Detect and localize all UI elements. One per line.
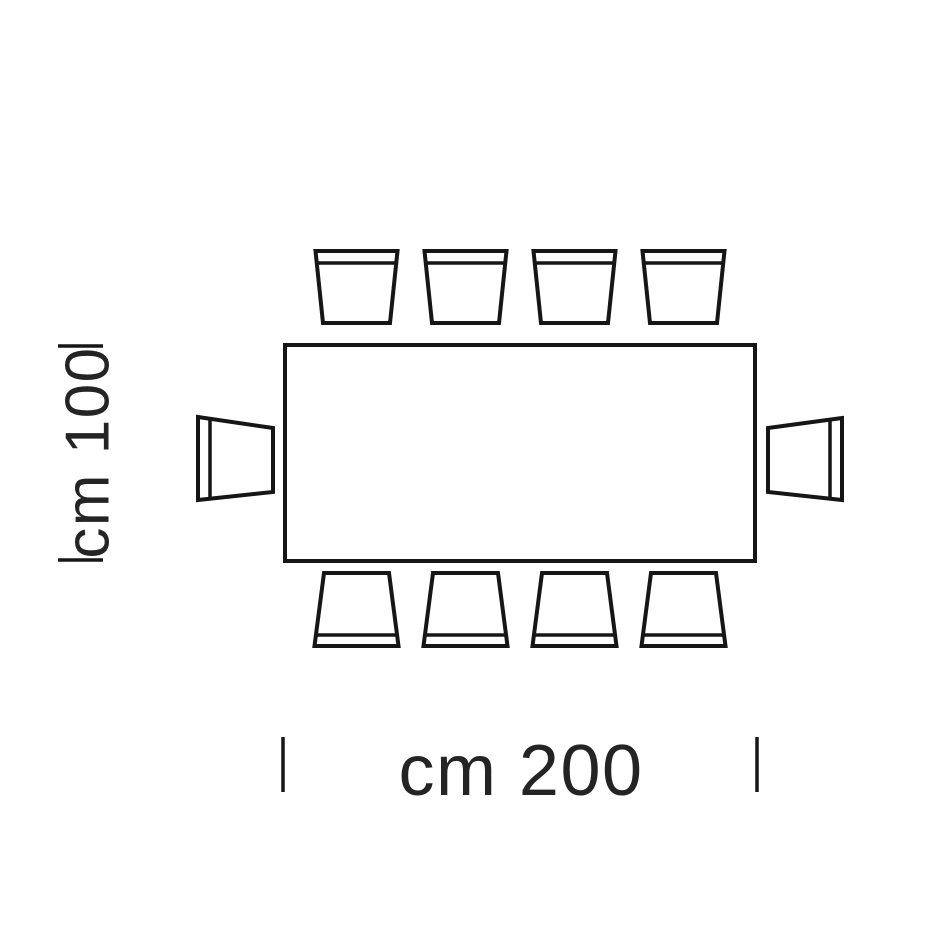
table-dimension-diagram: cm 100 cm 200 — [0, 0, 950, 950]
chair-top-4-icon — [643, 251, 725, 323]
chair-top-2-icon — [425, 251, 507, 323]
chair-bottom-4-icon — [642, 573, 726, 646]
chair-bottom-3-icon — [533, 573, 617, 646]
chair-right-icon — [768, 418, 842, 500]
chair-bottom-2-icon — [424, 573, 508, 646]
chair-top-3-icon — [534, 251, 616, 323]
height-dimension-label: cm 100 — [54, 346, 123, 558]
width-dimension-label: cm 200 — [398, 731, 643, 811]
chair-left-icon — [198, 417, 273, 500]
chair-bottom-1-icon — [315, 573, 399, 646]
table-outline — [285, 345, 755, 561]
diagram-canvas: cm 100 cm 200 — [0, 0, 950, 950]
chair-top-1-icon — [316, 251, 398, 323]
